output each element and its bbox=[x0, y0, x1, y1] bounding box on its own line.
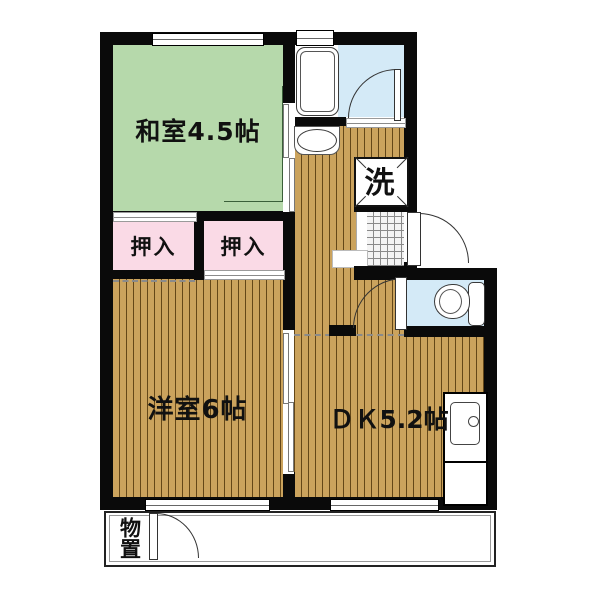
closet-1-label: 押入 bbox=[112, 232, 195, 259]
kitchen-counter bbox=[443, 461, 488, 506]
wall-toilet-bottom bbox=[404, 326, 497, 337]
fusuma-closet-2 bbox=[204, 270, 285, 280]
laundry-label: 洗 bbox=[354, 157, 405, 203]
washbasin bbox=[297, 129, 337, 152]
wall-center-vertical-lower bbox=[283, 472, 295, 498]
wall-hall-stub bbox=[329, 325, 356, 336]
toilet-bowl bbox=[434, 284, 470, 319]
western-room-label: 洋室6帖 bbox=[112, 392, 283, 422]
door-arc-entrance bbox=[419, 213, 469, 263]
door-leaf-storage bbox=[149, 513, 158, 560]
toilet-tank bbox=[468, 282, 485, 326]
window-japanese-room bbox=[152, 33, 264, 46]
door-leaf-toilet bbox=[395, 277, 407, 330]
floor-plan: 和室4.5帖 押入 押入 洋室6帖 ＤＫ5.2帖 洗 物置 bbox=[0, 0, 600, 600]
sliding-panel bbox=[283, 333, 289, 404]
sliding-door-western-dk bbox=[283, 331, 294, 474]
sliding-door-japanese-room bbox=[283, 103, 295, 212]
window-western-room bbox=[145, 499, 270, 511]
sliding-panel bbox=[289, 158, 295, 212]
fusuma-closet-1 bbox=[113, 212, 197, 222]
window-bathroom bbox=[296, 30, 334, 46]
toilet-bowl-inner bbox=[439, 289, 462, 314]
storage-label: 物置 bbox=[114, 514, 144, 562]
entrance-tile bbox=[366, 212, 404, 266]
door-leaf-entrance bbox=[407, 212, 421, 266]
floor-boundary-dashed bbox=[113, 280, 195, 282]
wall-japanese-room-right bbox=[283, 43, 295, 103]
japanese-room-label: 和室4.5帖 bbox=[112, 115, 284, 145]
bathtub-inner bbox=[300, 51, 335, 112]
bathtub bbox=[296, 47, 339, 116]
window-dining-kitchen bbox=[330, 499, 439, 511]
dining-kitchen-label: ＤＫ5.2帖 bbox=[294, 403, 484, 433]
door-leaf-bathroom bbox=[394, 69, 401, 121]
closet-2-label: 押入 bbox=[204, 232, 283, 259]
